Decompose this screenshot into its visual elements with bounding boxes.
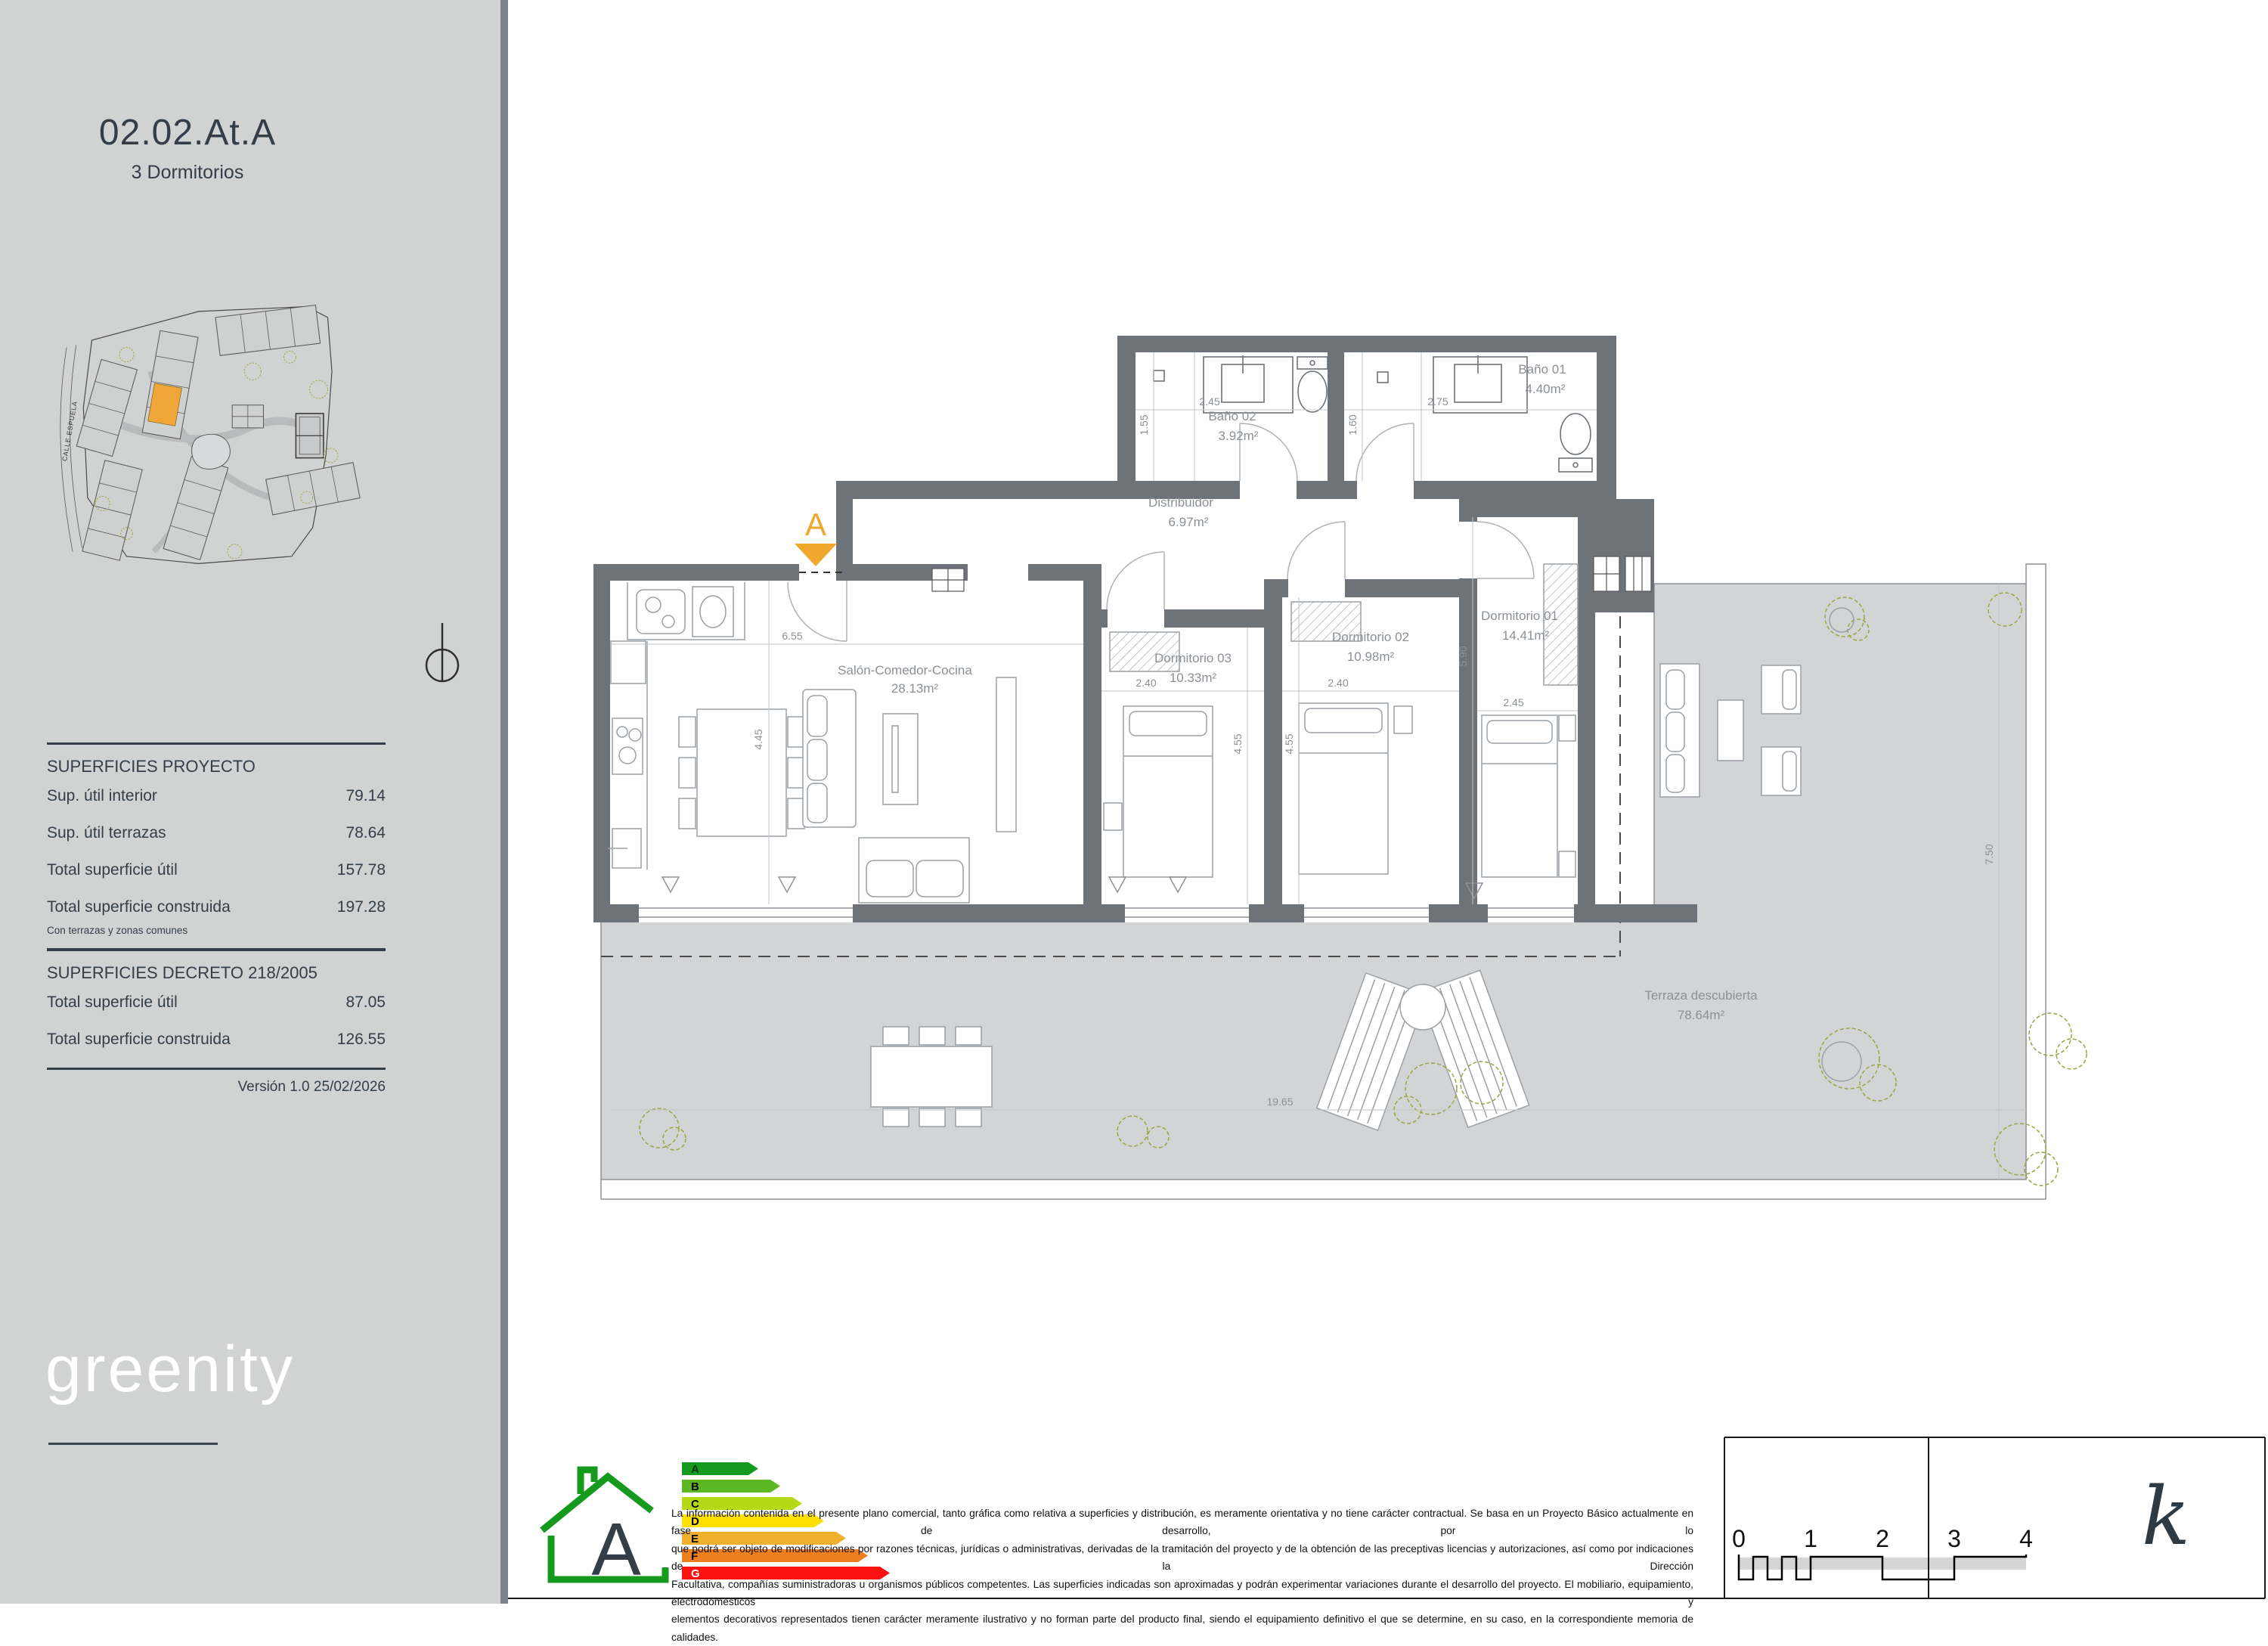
room-label-bano02: Baño 02 — [1208, 409, 1256, 423]
svg-text:6.55: 6.55 — [782, 630, 802, 642]
brand-logo: greenity — [45, 1332, 295, 1407]
svg-text:4.55: 4.55 — [1232, 733, 1244, 754]
svg-text:4: 4 — [2019, 1525, 2033, 1552]
sidebar-edge-strip — [500, 0, 508, 1604]
disclaimer-line: elementos decorativos representados tien… — [671, 1610, 1693, 1646]
table-title-proyecto: SUPERFICIES PROYECTO — [47, 757, 386, 777]
brand-underline — [48, 1443, 218, 1445]
table-title-decreto: SUPERFICIES DECRETO 218/2005 — [47, 963, 386, 983]
disclaimer-line: que podrá ser objeto de modificaciones p… — [671, 1540, 1693, 1576]
svg-text:10.33m²: 10.33m² — [1170, 671, 1217, 685]
svg-text:3.92m²: 3.92m² — [1219, 429, 1259, 443]
svg-text:7.50: 7.50 — [1983, 844, 1995, 864]
north-arrow-icon — [417, 617, 467, 690]
living-furniture — [679, 677, 1016, 903]
room-label-dormitorio02: Dormitorio 02 — [1332, 630, 1409, 644]
architect-logo: k — [2109, 1470, 2223, 1563]
svg-text:28.13m²: 28.13m² — [891, 681, 939, 696]
site-plan-map: CALLE ESPUELA — [54, 299, 391, 600]
svg-text:B: B — [691, 1480, 699, 1493]
room-label-dormitorio01: Dormitorio 01 — [1481, 609, 1558, 623]
energy-rating-letter: A — [591, 1508, 641, 1586]
table-row: Total superficie construida 197.28 — [47, 898, 386, 916]
disclaimer-line: Facultativa, compañías suministradoras u… — [671, 1576, 1693, 1611]
svg-text:2.45: 2.45 — [1503, 696, 1523, 708]
door-swings — [788, 423, 1534, 641]
svg-text:4.55: 4.55 — [1283, 733, 1295, 754]
pool — [192, 434, 231, 469]
site-buildings — [76, 305, 360, 561]
legal-disclaimer: La información contenida en el presente … — [671, 1505, 1693, 1646]
threshold-markers — [662, 877, 1483, 898]
svg-text:0: 0 — [1732, 1525, 1746, 1552]
table-row: Sup. útil terrazas 78.64 — [47, 824, 386, 842]
svg-text:2.75: 2.75 — [1427, 395, 1448, 408]
svg-text:1: 1 — [1804, 1525, 1817, 1552]
unit-type: 3 Dormitorios — [0, 162, 375, 184]
svg-text:2.40: 2.40 — [1328, 677, 1348, 689]
svg-text:4.45: 4.45 — [752, 729, 764, 749]
svg-text:3: 3 — [1947, 1525, 1961, 1552]
svg-text:78.64m²: 78.64m² — [1678, 1008, 1725, 1022]
room-label-bano01: Baño 01 — [1518, 362, 1566, 377]
svg-text:19.65: 19.65 — [1266, 1096, 1293, 1108]
room-label-salon: Salón-Comedor-Cocina — [838, 663, 972, 677]
svg-text:1.55: 1.55 — [1138, 414, 1150, 435]
room-label-terraza: Terraza descubierta — [1644, 988, 1758, 1003]
version-label: Versión 1.0 25/02/2026 — [47, 1079, 386, 1096]
disclaimer-line: La información contenida en el presente … — [671, 1505, 1693, 1540]
room-label-distribuidor: Distribuidor — [1148, 495, 1213, 510]
svg-text:2.40: 2.40 — [1136, 677, 1156, 689]
svg-text:5.90: 5.90 — [1457, 646, 1469, 666]
svg-text:4.40m²: 4.40m² — [1526, 382, 1566, 396]
page-title: 02.02.At.A — [0, 112, 375, 153]
table-row: Total superficie útil 87.05 — [47, 993, 386, 1012]
room-label-dormitorio03: Dormitorio 03 — [1154, 651, 1232, 665]
section-letter: A — [805, 507, 826, 542]
svg-text:2.45: 2.45 — [1199, 395, 1219, 408]
sidebar: 02.02.At.A 3 Dormitorios CALLE ESPUELA — [0, 0, 500, 1604]
svg-text:1.60: 1.60 — [1346, 414, 1359, 435]
table-row: Sup. útil interior 79.14 — [47, 787, 386, 805]
svg-text:14.41m²: 14.41m² — [1502, 628, 1550, 643]
paddle-court — [296, 414, 324, 458]
table-row: Total superficie construida 126.55 — [47, 1031, 386, 1049]
scale-bar: 0 1 2 3 4 — [1732, 1525, 2033, 1579]
svg-text:10.98m²: 10.98m² — [1347, 649, 1395, 664]
table-row: Total superficie útil 157.78 — [47, 861, 386, 879]
svg-text:2: 2 — [1876, 1525, 1889, 1552]
svg-text:A: A — [691, 1463, 699, 1476]
svg-text:6.97m²: 6.97m² — [1169, 515, 1209, 529]
street-label: CALLE ESPUELA — [60, 401, 79, 462]
table-note: Con terrazas y zonas comunes — [47, 925, 386, 936]
surface-tables: SUPERFICIES PROYECTO Sup. útil interior … — [47, 742, 386, 1096]
